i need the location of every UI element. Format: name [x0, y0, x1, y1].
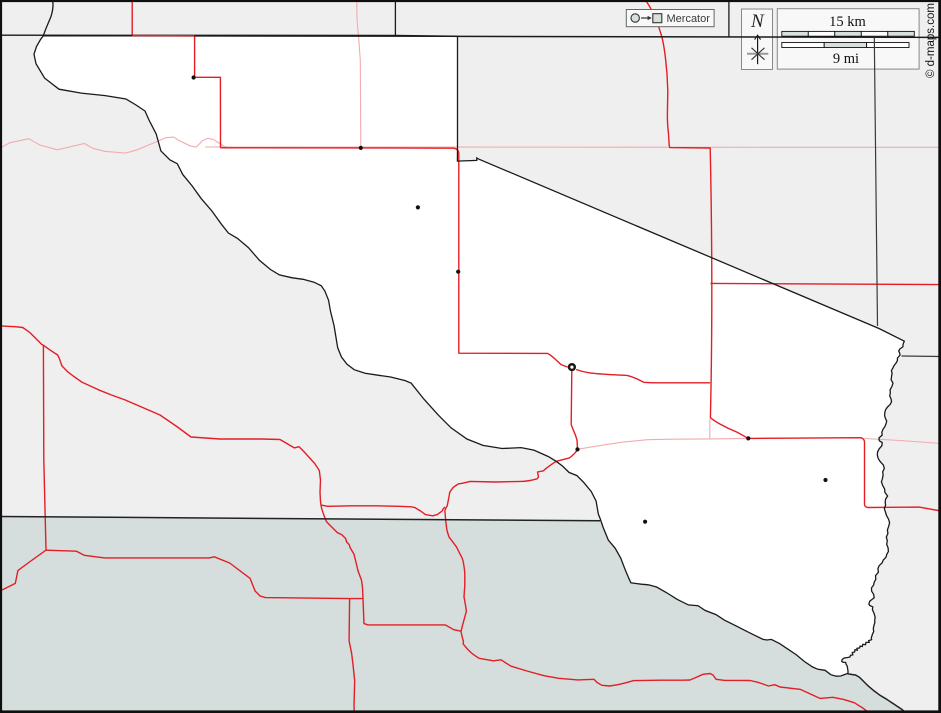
svg-text:© d-maps.com: © d-maps.com	[925, 3, 937, 78]
svg-text:N: N	[750, 11, 765, 32]
svg-text:Mercator: Mercator	[667, 13, 711, 25]
svg-text:15 km: 15 km	[829, 14, 866, 30]
svg-text:9 mi: 9 mi	[833, 51, 859, 67]
